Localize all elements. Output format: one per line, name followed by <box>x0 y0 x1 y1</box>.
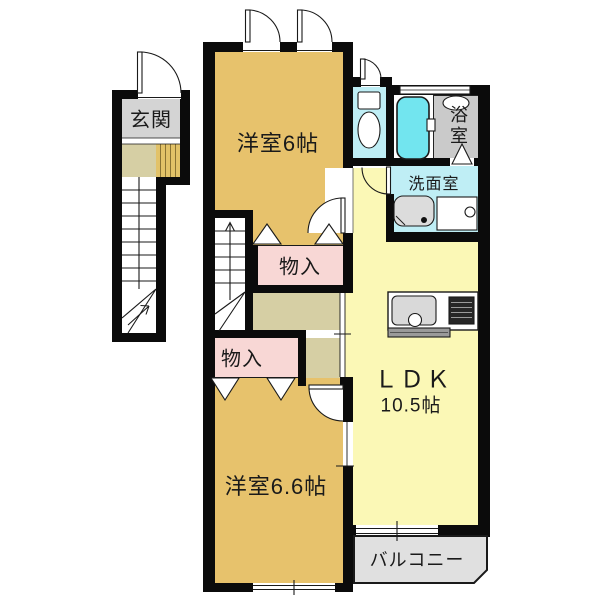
door-leaf <box>298 10 303 42</box>
wall <box>180 90 190 185</box>
wall <box>386 87 394 166</box>
genkan-door-opening <box>138 90 181 99</box>
genkan-wood-steps <box>156 144 180 177</box>
balcony-label: バルコニー <box>370 546 465 572</box>
hallway-lower-floor <box>306 338 340 380</box>
bedroom6-door-opening-1 <box>243 42 280 52</box>
door-arc <box>300 10 332 42</box>
bedroom66-window-opening <box>253 583 335 592</box>
wall <box>386 232 490 242</box>
wall <box>203 42 215 592</box>
wall <box>392 85 490 95</box>
bath-label: 浴室 <box>445 105 471 147</box>
wall <box>343 158 394 166</box>
wall <box>156 177 166 342</box>
genkan-door-leaf <box>138 52 143 93</box>
ldk-size-label: 10.5帖 <box>381 391 442 418</box>
door-arc <box>248 10 280 42</box>
bedroom6-doorway-floor <box>325 168 353 233</box>
wall <box>112 333 166 342</box>
wall <box>343 400 353 422</box>
washroom-label: 洗面室 <box>408 170 459 194</box>
ldk-label: ＬＤＫ <box>374 360 452 395</box>
hallway-upper-floor <box>253 293 340 330</box>
wall <box>112 90 122 342</box>
wall <box>203 210 253 218</box>
bedroom66-label: 洋室6.6帖 <box>225 469 328 501</box>
wall <box>340 377 353 400</box>
bedroom6-door-opening-2 <box>297 42 332 52</box>
bedroom6-label: 洋室6帖 <box>237 126 319 158</box>
wall <box>298 330 306 386</box>
wall <box>250 285 353 293</box>
wall <box>343 42 353 168</box>
toilet-floor <box>353 87 386 160</box>
sliding-door-opening <box>343 422 353 466</box>
toilet-door-opening <box>361 77 380 87</box>
ldk-hall-floor <box>353 168 390 242</box>
door-leaf <box>246 10 251 42</box>
wall <box>478 85 490 537</box>
floor-plan: 玄関 洋室6帖 浴室 洗面室 物入 物入 ＬＤＫ 10.5帖 洋室6.6帖 バル… <box>0 0 600 600</box>
closet-lower-label: 物入 <box>221 343 263 372</box>
exterior-stairwell-floor <box>122 177 156 333</box>
ldk-window-opening <box>356 525 438 537</box>
toilet-door-leaf <box>361 59 366 79</box>
wall <box>343 233 353 293</box>
closet-upper-label: 物入 <box>279 251 321 280</box>
interior-stairwell-floor <box>215 218 245 330</box>
genkan-door-arc <box>140 52 181 93</box>
toilet-door-arc <box>363 59 381 79</box>
genkan-label: 玄関 <box>130 104 172 133</box>
wall <box>203 330 306 338</box>
bath-door-opening <box>450 158 474 166</box>
